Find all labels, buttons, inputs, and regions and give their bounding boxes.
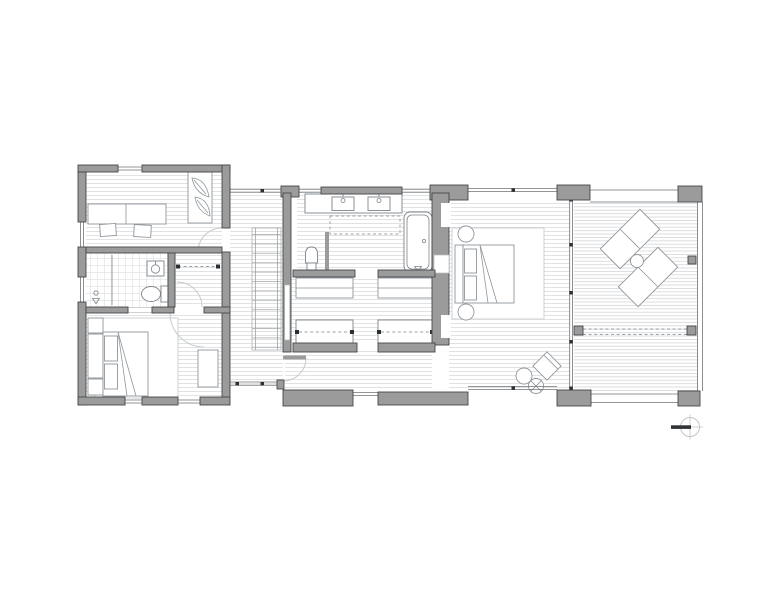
floor-plan-page	[0, 0, 780, 603]
round-nightstand	[458, 226, 474, 242]
hall-closet-floor	[175, 253, 222, 307]
staircase	[252, 228, 281, 350]
wall-office-bath	[86, 247, 222, 253]
pillow	[465, 249, 477, 273]
wall-niche	[434, 255, 449, 273]
closet-rod-unit	[295, 320, 354, 344]
window-bedroom-south	[178, 400, 200, 403]
deck-edge-north	[590, 190, 678, 202]
toilet	[142, 286, 169, 302]
office-wardrobe	[188, 172, 212, 223]
pier	[557, 185, 590, 200]
desk-chair	[134, 225, 152, 238]
vanity-sink	[368, 195, 390, 211]
window-corridor-south	[353, 393, 378, 396]
window-office-west	[81, 222, 84, 247]
pillow	[105, 336, 118, 361]
vanity-sink	[332, 195, 354, 211]
window-office-top	[118, 167, 142, 170]
headboard	[88, 334, 103, 378]
pocket-door-opening	[441, 315, 451, 338]
rod-end	[216, 265, 220, 269]
office-desk	[88, 204, 166, 224]
glass-wall-bedroom-deck	[570, 200, 573, 390]
closet-island	[296, 278, 353, 298]
rod-end	[176, 265, 180, 269]
window-bath-north	[299, 189, 321, 192]
pier	[678, 391, 700, 406]
closet-rod-unit	[377, 320, 434, 344]
floor-plan-drawing	[0, 0, 780, 603]
privacy-wall	[325, 232, 329, 272]
north-arrow-icon	[671, 415, 703, 440]
pillow	[465, 276, 477, 300]
washbasin	[147, 261, 164, 276]
nightstand	[88, 318, 103, 333]
north-needle	[671, 425, 691, 429]
desk-chair	[100, 223, 117, 236]
window-hall-north	[230, 189, 281, 192]
pillow	[105, 364, 118, 389]
round-nightstand	[458, 304, 474, 320]
rail-post	[574, 326, 583, 335]
deck-edge-east	[698, 202, 703, 391]
south-corridor-floor	[285, 350, 432, 390]
master-toilet	[306, 247, 318, 270]
rail-post	[687, 326, 696, 335]
deck-edge-south	[590, 394, 678, 403]
window-bath-north	[402, 189, 430, 192]
headboard	[455, 245, 463, 303]
rail-post	[688, 256, 696, 264]
window-bedroom-south	[125, 400, 142, 403]
dresser	[198, 350, 218, 387]
nightstand	[88, 379, 103, 395]
window-bath-west	[81, 277, 84, 302]
door-leaf-corridor	[283, 356, 306, 360]
bathtub	[404, 212, 432, 272]
pier	[678, 186, 702, 202]
deck-round-table	[631, 255, 644, 268]
wall-bath-closet	[168, 253, 175, 307]
built-in-shelf	[285, 285, 290, 340]
closet-island	[378, 278, 433, 298]
pier	[557, 390, 591, 406]
pocket-door-opening	[441, 203, 451, 227]
bathroom-door-leaf	[128, 308, 152, 313]
drinks-table	[529, 379, 544, 394]
